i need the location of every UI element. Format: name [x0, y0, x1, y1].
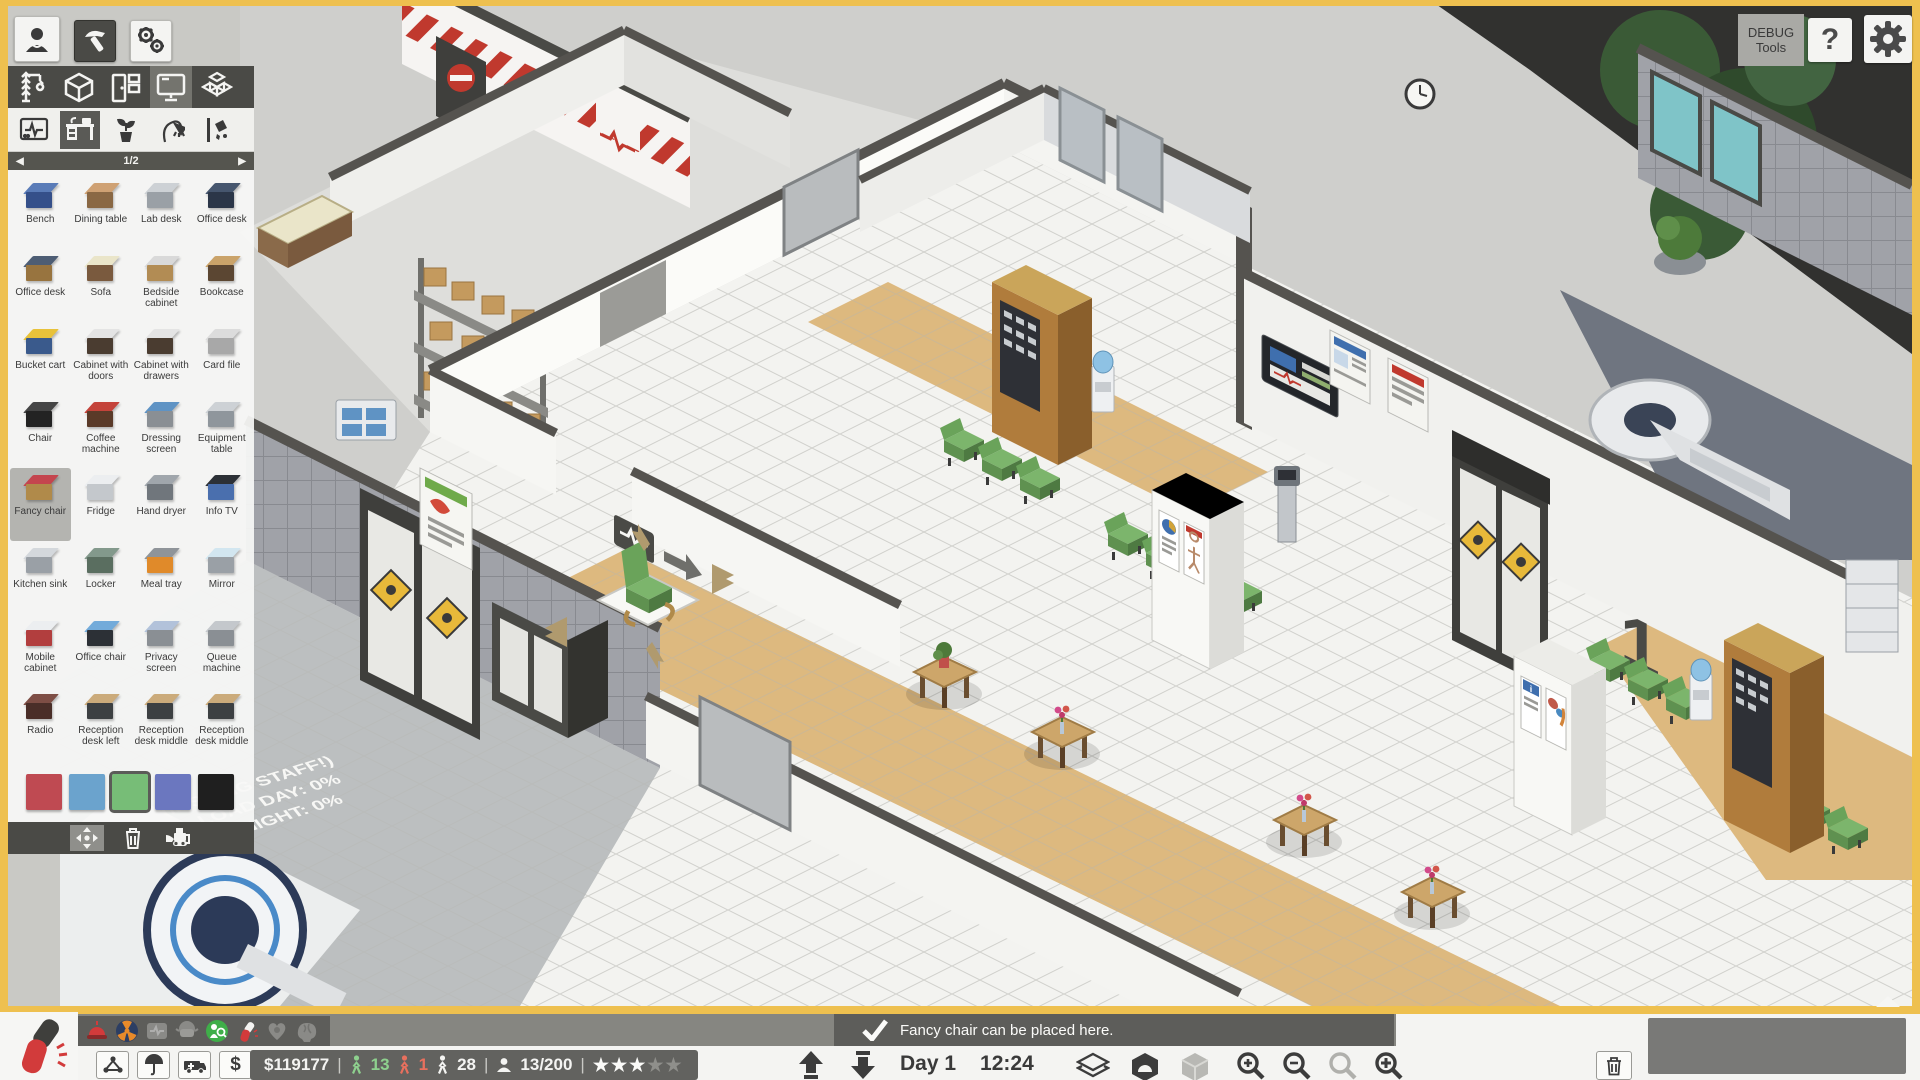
floor-controls	[798, 1050, 876, 1080]
bulldoze-tool-button[interactable]	[162, 825, 196, 851]
pagination: ◀ 1/2 ▶	[8, 152, 254, 170]
color-swatch-2[interactable]	[112, 774, 148, 810]
furniture-item-icon	[18, 253, 62, 285]
furniture-item-icon	[200, 691, 244, 723]
staff-warn-count: 1	[419, 1055, 428, 1075]
furniture-item-label: Cabinet with doors	[71, 360, 132, 382]
surgery-dept-icon[interactable]	[174, 1019, 199, 1044]
furniture-item-label: Meal tray	[131, 579, 192, 590]
diagnostics-dept-icon[interactable]	[204, 1019, 229, 1044]
radiology-dept-icon[interactable]	[114, 1019, 139, 1044]
delete-tool-button[interactable]	[116, 825, 150, 851]
furniture-item-mobile-cabinet[interactable]: Mobile cabinet	[10, 614, 71, 687]
vending-machine	[1724, 623, 1824, 853]
wall-clock	[1406, 80, 1434, 108]
emergency-dept-icon[interactable]	[84, 1019, 109, 1044]
tab-medical-equipment[interactable]	[14, 111, 54, 149]
tab-rooms[interactable]	[58, 66, 100, 108]
expand-arrow[interactable]	[1876, 996, 1900, 1007]
furniture-item-label: Mirror	[192, 579, 253, 590]
furniture-item-label: Dressing screen	[131, 433, 192, 455]
tab-equipment[interactable]	[150, 66, 192, 108]
vending-machine	[992, 265, 1092, 465]
category-tabs	[8, 66, 254, 108]
water-cooler	[1690, 659, 1712, 720]
furniture-item-icon	[18, 180, 62, 212]
zoom-controls	[1236, 1051, 1404, 1080]
info-tooltip-panel	[1648, 1018, 1906, 1074]
staff-ok-icon	[350, 1055, 363, 1075]
patients-icon	[436, 1055, 449, 1075]
furniture-item-icon	[200, 326, 244, 358]
tab-doors-windows[interactable]	[104, 66, 146, 108]
main-toolbar	[14, 16, 172, 62]
orthopedics-logo-icon	[0, 1012, 78, 1080]
furniture-item-bookcase[interactable]: Bookcase	[192, 249, 253, 322]
info-stand	[1152, 473, 1244, 669]
viewport-frame	[1912, 0, 1920, 1012]
furniture-item-label: Mobile cabinet	[10, 652, 71, 674]
zoom-fit-button[interactable]	[1374, 1051, 1404, 1080]
furniture-item-label: Bucket cart	[10, 360, 71, 371]
furniture-item-mirror[interactable]: Mirror	[192, 541, 253, 614]
furniture-item-icon	[18, 399, 62, 431]
tab-lamps[interactable]	[152, 111, 192, 149]
finances-button[interactable]: $	[219, 1051, 252, 1079]
status-bar: $119177 | 13 1 28 | 13/200 | ★★★★★	[250, 1050, 698, 1080]
furniture-item-icon	[139, 472, 183, 504]
furniture-item-icon	[79, 545, 123, 577]
color-swatch-1[interactable]	[69, 774, 105, 810]
furniture-item-radio[interactable]: Radio	[10, 687, 71, 760]
furniture-item-label: Office chair	[71, 652, 132, 663]
furniture-item-label: Dining table	[71, 214, 132, 225]
viewport-frame	[0, 1006, 1920, 1014]
rating-stars: ★★★★★	[593, 1055, 684, 1076]
file-cabinet	[1846, 560, 1898, 652]
cardiology-dept-icon[interactable]	[264, 1019, 289, 1044]
furniture-item-icon	[79, 691, 123, 723]
color-swatches	[8, 762, 254, 822]
viewport-frame	[0, 0, 1920, 6]
color-swatch-4[interactable]	[198, 774, 234, 810]
furniture-item-icon	[139, 545, 183, 577]
check-icon	[862, 1019, 888, 1041]
furniture-item-icon	[79, 180, 123, 212]
furniture-item-info-tv[interactable]: Info TV	[192, 468, 253, 541]
furniture-item-label: Reception desk middle	[192, 725, 253, 747]
furniture-item-label: Bookcase	[192, 287, 253, 298]
furniture-item-equipment-table[interactable]: Equipment table	[192, 395, 253, 468]
furniture-item-meal-tray[interactable]: Meal tray	[131, 541, 192, 614]
furniture-item-cabinet-with-doors[interactable]: Cabinet with doors	[71, 322, 132, 395]
furniture-item-icon	[18, 691, 62, 723]
furniture-item-icon	[18, 618, 62, 650]
debug-label-2: Tools	[1738, 40, 1804, 55]
furniture-item-privacy-screen[interactable]: Privacy screen	[131, 614, 192, 687]
svg-text:i: i	[1530, 684, 1533, 696]
build-panel: ◀ 1/2 ▶ BenchDining tableLab deskOffice …	[8, 66, 254, 854]
furniture-item-bedside-cabinet[interactable]: Bedside cabinet	[131, 249, 192, 322]
furniture-item-card-file[interactable]: Card file	[192, 322, 253, 395]
furniture-item-label: Radio	[10, 725, 71, 736]
floor-up-button[interactable]	[798, 1050, 824, 1080]
capacity-value: 13/200	[520, 1055, 572, 1075]
furniture-item-icon	[139, 180, 183, 212]
furniture-item-queue-machine[interactable]: Queue machine	[192, 614, 253, 687]
layers-view-button[interactable]	[1076, 1052, 1110, 1080]
ambulance-button[interactable]	[178, 1051, 211, 1079]
furniture-item-icon	[139, 399, 183, 431]
staff-roles-button[interactable]	[96, 1051, 129, 1079]
gear-icon	[1870, 21, 1906, 57]
management-button[interactable]	[130, 20, 172, 62]
supply-cart	[336, 400, 396, 440]
furniture-item-hand-dryer[interactable]: Hand dryer	[131, 468, 192, 541]
furniture-item-coffee-machine[interactable]: Coffee machine	[71, 395, 132, 468]
game-stage: 1	[0, 0, 1920, 1080]
tab-furniture[interactable]	[60, 111, 100, 149]
furniture-item-fridge[interactable]: Fridge	[71, 468, 132, 541]
day-time: Day 1 12:24	[900, 1052, 1034, 1076]
furniture-item-label: Office desk	[10, 287, 71, 298]
department-icons	[78, 1016, 330, 1046]
furniture-item-sofa[interactable]: Sofa	[71, 249, 132, 322]
walls-view-button[interactable]	[1130, 1052, 1160, 1080]
furniture-item-icon	[139, 618, 183, 650]
info-stand: i	[1514, 639, 1606, 835]
furniture-item-label: Office desk	[192, 214, 253, 225]
staff-button[interactable]	[14, 16, 60, 62]
zoom-reset-button[interactable]	[1328, 1051, 1358, 1080]
furniture-item-label: Reception desk left	[71, 725, 132, 747]
furniture-item-icon	[79, 472, 123, 504]
furniture-item-kitchen-sink[interactable]: Kitchen sink	[10, 541, 71, 614]
staff-warn-icon	[398, 1055, 411, 1075]
move-tool-button[interactable]	[70, 825, 104, 851]
furniture-item-icon	[18, 472, 62, 504]
furniture-item-icon	[200, 618, 244, 650]
furniture-item-label: Locker	[71, 579, 132, 590]
next-page-arrow[interactable]: ▶	[238, 156, 246, 167]
furniture-item-icon	[79, 253, 123, 285]
furniture-item-icon	[79, 618, 123, 650]
furniture-item-office-chair[interactable]: Office chair	[71, 614, 132, 687]
furniture-item-icon	[18, 545, 62, 577]
furniture-item-icon	[200, 399, 244, 431]
furniture-item-office-desk[interactable]: Office desk	[10, 249, 71, 322]
viewport-frame	[0, 0, 8, 1012]
subcategory-tabs	[8, 108, 254, 152]
patients-count: 28	[457, 1055, 476, 1075]
furniture-item-label: Coffee machine	[71, 433, 132, 455]
furniture-item-cabinet-with-drawers[interactable]: Cabinet with drawers	[131, 322, 192, 395]
furniture-item-label: Lab desk	[131, 214, 192, 225]
furniture-item-label: Reception desk middle	[131, 725, 192, 747]
furniture-item-icon	[18, 326, 62, 358]
color-swatch-3[interactable]	[155, 774, 191, 810]
time-label: 12:24	[980, 1052, 1034, 1076]
furniture-item-icon	[200, 180, 244, 212]
furniture-grid: BenchDining tableLab deskOffice deskOffi…	[8, 170, 254, 762]
furniture-item-icon	[139, 253, 183, 285]
furniture-item-icon	[139, 691, 183, 723]
zoom-out-button[interactable]	[1282, 1051, 1312, 1080]
furniture-item-reception-desk-middle[interactable]: Reception desk middle	[192, 687, 253, 760]
water-cooler	[1092, 351, 1114, 412]
furniture-item-icon	[79, 399, 123, 431]
staff-ok-count: 13	[371, 1055, 390, 1075]
prev-page-arrow[interactable]: ◀	[16, 156, 24, 167]
view-toggles	[1076, 1052, 1210, 1080]
furniture-item-label: Queue machine	[192, 652, 253, 674]
furniture-item-icon	[139, 326, 183, 358]
debug-label-1: DEBUG	[1738, 25, 1804, 40]
help-button[interactable]: ?	[1808, 18, 1852, 62]
furniture-item-label: Bedside cabinet	[131, 287, 192, 309]
build-button[interactable]	[74, 20, 116, 62]
furniture-item-label: Cabinet with drawers	[131, 360, 192, 382]
furniture-item-locker[interactable]: Locker	[71, 541, 132, 614]
furniture-item-lab-desk[interactable]: Lab desk	[131, 176, 192, 249]
floor-down-button[interactable]	[850, 1050, 876, 1080]
settings-button[interactable]	[1864, 15, 1912, 63]
furniture-item-label: Fridge	[71, 506, 132, 517]
3d-view-button[interactable]	[1180, 1052, 1210, 1080]
trash-icon	[1606, 1056, 1622, 1076]
furniture-item-label: Fancy chair	[10, 506, 71, 517]
furniture-item-icon	[79, 326, 123, 358]
neurology-dept-icon[interactable]	[294, 1019, 319, 1044]
furniture-item-office-desk[interactable]: Office desk	[192, 176, 253, 249]
furniture-item-reception-desk-middle[interactable]: Reception desk middle	[131, 687, 192, 760]
tab-construction[interactable]	[12, 66, 54, 108]
furniture-item-bucket-cart[interactable]: Bucket cart	[10, 322, 71, 395]
furniture-item-icon	[200, 545, 244, 577]
insurance-button[interactable]	[137, 1051, 170, 1079]
furniture-item-label: Sofa	[71, 287, 132, 298]
furniture-item-dining-table[interactable]: Dining table	[71, 176, 132, 249]
orthopedics-dept-icon[interactable]	[234, 1019, 259, 1044]
tab-decoration[interactable]	[198, 111, 238, 149]
notification-text: Fancy chair can be placed here.	[900, 1022, 1113, 1039]
tab-objects[interactable]	[196, 66, 238, 108]
page-indicator: 1/2	[123, 155, 138, 167]
queue-machine	[1274, 466, 1300, 542]
furniture-item-icon	[200, 253, 244, 285]
notification-bar: Fancy chair can be placed here.	[834, 1014, 1394, 1046]
furniture-item-label: Hand dryer	[131, 506, 192, 517]
furniture-item-label: Chair	[10, 433, 71, 444]
furniture-item-label: Kitchen sink	[10, 579, 71, 590]
furniture-item-fancy-chair[interactable]: Fancy chair	[10, 468, 71, 541]
hud-bar: $ $119177 | 13 1 28 | 13/200 | ★★★★★ Fan…	[0, 1014, 1920, 1080]
hud-trash-button[interactable]	[1596, 1051, 1632, 1080]
furniture-item-bench[interactable]: Bench	[10, 176, 71, 249]
zoom-in-button[interactable]	[1236, 1051, 1266, 1080]
color-swatch-0[interactable]	[26, 774, 62, 810]
furniture-item-dressing-screen[interactable]: Dressing screen	[131, 395, 192, 468]
panel-actions	[8, 822, 254, 854]
furniture-item-icon	[200, 472, 244, 504]
furniture-item-label: Card file	[192, 360, 253, 371]
furniture-item-label: Info TV	[192, 506, 253, 517]
tab-plants[interactable]	[106, 111, 146, 149]
capacity-icon	[496, 1057, 512, 1073]
furniture-item-chair[interactable]: Chair	[10, 395, 71, 468]
day-label: Day 1	[900, 1052, 956, 1076]
furniture-item-reception-desk-left[interactable]: Reception desk left	[71, 687, 132, 760]
furniture-item-label: Privacy screen	[131, 652, 192, 674]
debug-tools-button[interactable]: DEBUG Tools	[1738, 14, 1804, 66]
furniture-item-label: Bench	[10, 214, 71, 225]
logo-box	[0, 1012, 78, 1080]
hospital-scene[interactable]: 1	[0, 0, 1920, 1012]
money-value: $119177	[264, 1055, 329, 1075]
furniture-item-label: Equipment table	[192, 433, 253, 455]
general-dept-icon[interactable]	[144, 1019, 169, 1044]
